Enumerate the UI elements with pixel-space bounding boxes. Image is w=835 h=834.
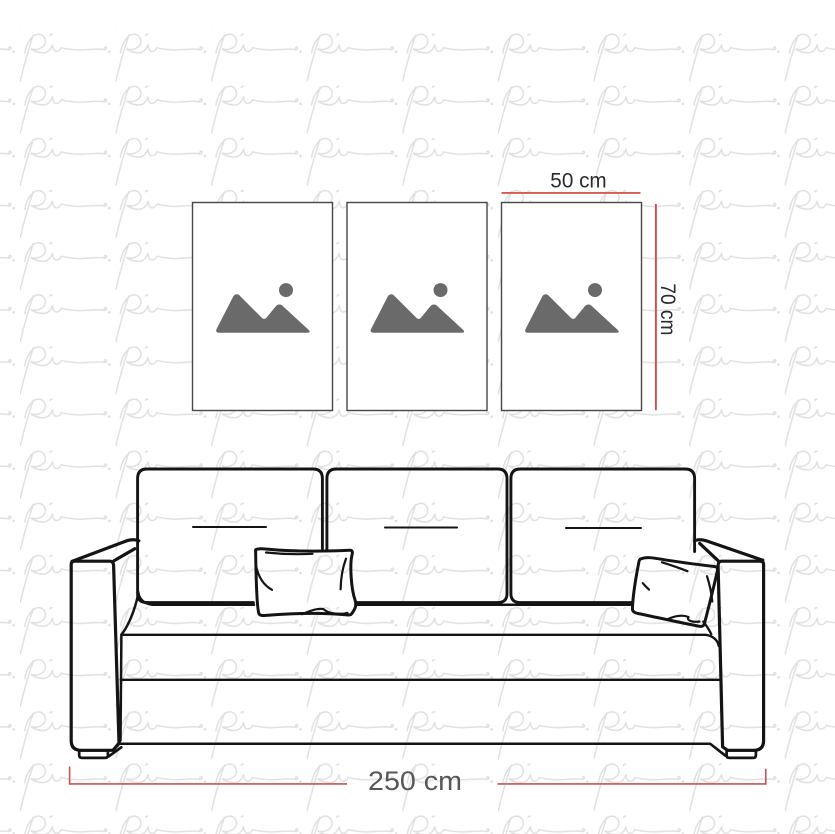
svg-text:50 cm: 50 cm [550,169,606,193]
svg-text:250 cm: 250 cm [368,766,462,796]
svg-text:70 cm: 70 cm [656,283,680,335]
